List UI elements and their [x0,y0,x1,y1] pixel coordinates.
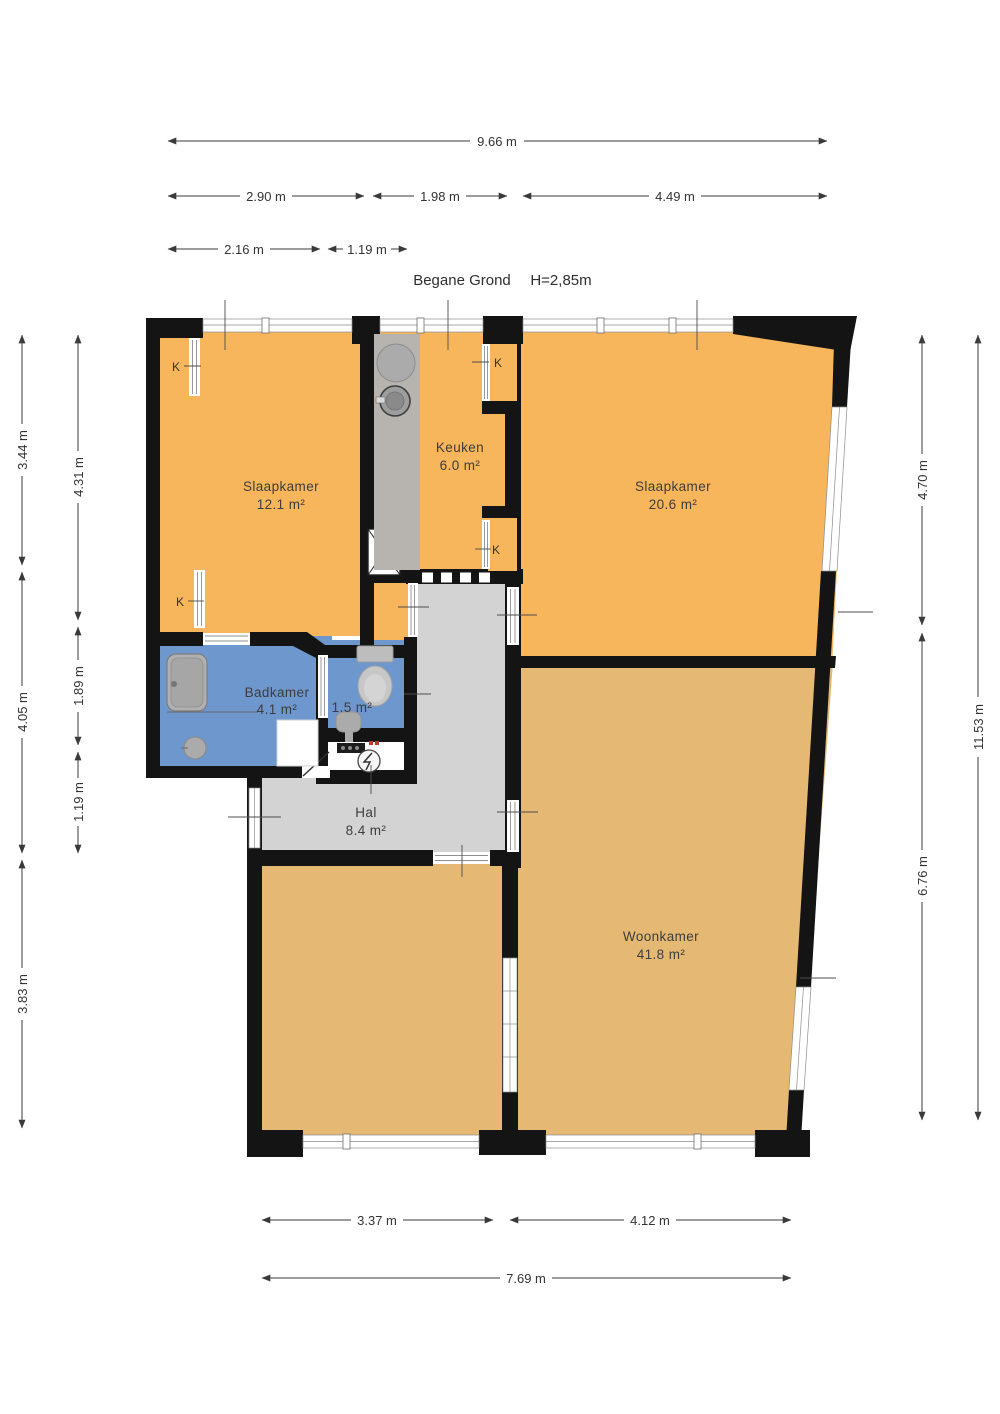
dim-label: 2.90 m [246,189,286,204]
dim-label: 4.05 m [15,692,30,732]
window-mullion [262,318,269,333]
fuse-dot [341,746,345,750]
wall-bedroom1-kitchen [360,330,374,658]
window-mullion [417,318,424,333]
label-keuken-name: Keuken [436,440,484,455]
wall-hal-bottom-a [256,850,433,866]
wall-hal-bottom-b [490,850,508,866]
toilet-sink-stem [345,730,353,742]
toilet-seat [364,674,386,702]
door-bedroom1 [203,633,250,645]
window-mullion [597,318,604,333]
meter-red-mark [375,741,379,745]
label-closet-k2: K [176,595,184,609]
wall-toilet-bottom [320,728,417,742]
door-toilet [318,655,328,718]
dim-label: 11.53 m [971,704,986,750]
dim-left-outer-b: 4.05 m [15,572,30,853]
dim-label: 1.89 m [71,666,86,706]
plan-title: Begane Grond H=2,85m [413,272,591,289]
kitchen-tap-icon [376,397,385,403]
dim-bottom-b: 4.12 m [510,1213,791,1228]
dim-left-inner-b: 1.89 m [71,627,86,745]
label-toilet-area: 1.5 m² [332,700,373,715]
dim-label: 9.66 m [477,134,517,149]
ceiling-height: H=2,85m [530,272,591,289]
dim-label: 4.70 m [915,460,930,500]
washer-area [277,720,318,766]
closet-k3-interior [488,344,517,401]
floorplan-page: Slaapkamer 12.1 m² Keuken 6.0 m² Slaapka… [0,0,1000,1414]
floor-title: Begane Grond [413,272,511,289]
dim-label: 3.44 m [15,430,30,470]
door-closet-k4 [482,520,490,569]
label-woonkamer-area: 41.8 m² [637,947,686,962]
door-hal-woonkamer [507,800,519,852]
floorplan-drawing: Slaapkamer 12.1 m² Keuken 6.0 m² Slaapka… [0,0,1000,1414]
label-slaapkamer1-name: Slaapkamer [243,479,319,494]
dim-label: 7.69 m [506,1271,546,1286]
wall-bedroom2-bottom [505,656,836,668]
dim-label: 3.37 m [357,1213,397,1228]
dim-right-inner-a: 4.70 m [915,335,930,625]
dim-label: 4.49 m [655,189,695,204]
dim-top-total: 9.66 m [168,134,827,149]
label-hal-name: Hal [355,805,376,820]
wall-closet4-top [482,506,521,518]
dim-label: 4.12 m [630,1213,670,1228]
label-woonkamer-name: Woonkamer [623,929,699,944]
dim-label: 3.83 m [15,974,30,1014]
dim-label: 1.19 m [347,242,387,257]
dim-right-inner-b: 6.76 m [915,633,930,1120]
window-mullion [694,1134,701,1149]
dim-label: 1.98 m [420,189,460,204]
wall-toilet-right [404,637,417,784]
wall-badkamer-bottom [146,766,302,778]
dim-bottom-total: 7.69 m [262,1271,791,1286]
wall-left [146,318,160,778]
label-badkamer-area: 4.1 m² [257,702,298,717]
door-bedroom2 [507,587,519,645]
dim-top-b: 1.98 m [373,189,507,204]
wall-bottom-right-corner [755,1130,810,1157]
bathtub-faucet-icon [171,681,177,687]
glass-door-panel [503,958,517,1092]
wall-bedroom1-bottom-a [146,632,203,646]
label-badkamer-name: Badkamer [245,685,310,700]
dim-top-e: 1.19 m [328,242,407,257]
dim-right-outer: 11.53 m [971,335,986,1120]
label-slaapkamer2-name: Slaapkamer [635,479,711,494]
door-closet-k3 [482,344,490,401]
label-keuken-area: 6.0 m² [440,458,481,473]
window-mullion [669,318,676,333]
wall-bedroom1-bottom-b [250,632,295,646]
dim-label: 1.19 m [71,782,86,822]
fuse-dot [348,746,352,750]
dim-label: 6.76 m [915,856,930,896]
label-slaapkamer1-area: 12.1 m² [257,497,306,512]
label-slaapkamer2-area: 20.6 m² [649,497,698,512]
kitchen-sink-basin [386,392,404,410]
dim-bottom-a: 3.37 m [262,1213,493,1228]
wall-bottom-center-block [479,1130,546,1155]
dim-top-a: 2.90 m [168,189,364,204]
dim-label: 4.31 m [71,457,86,497]
dim-label: 2.16 m [224,242,264,257]
fuse-dot [355,746,359,750]
kitchen-cooktop-icon [377,344,415,382]
label-closet-k3: K [494,356,502,370]
label-closet-k1: K [172,360,180,374]
toilet-tank-icon [357,646,393,662]
toilet-sink-icon [336,712,361,732]
door-vestibule [408,583,418,637]
wall-closet3-bottom [482,401,521,414]
room-bottom-left [256,862,508,1140]
electric-meter-icon [358,750,380,772]
label-hal-area: 8.4 m² [346,823,387,838]
door-hal-bottom-room [433,852,490,864]
label-closet-k4: K [492,543,500,557]
window-mullion [343,1134,350,1149]
door-closet-k2 [194,570,205,628]
dim-top-c: 4.49 m [523,189,827,204]
dim-top-d: 2.16 m [168,242,320,257]
room-hal-lower [256,776,412,862]
door-closet-k1 [189,338,200,396]
dim-left-inner-a: 4.31 m [71,335,86,620]
dim-left-outer-c: 3.83 m [15,860,30,1128]
dim-left-outer-a: 3.44 m [15,335,30,565]
meter-red-mark [369,741,373,745]
wall-right-upper [832,342,851,407]
wall-bottom-left-corner [247,1130,303,1157]
window-top-keuken [380,319,483,332]
window-top-bedroom2 [523,319,733,332]
dim-left-inner-c: 1.19 m [71,752,86,853]
room-hal-corridor [410,580,513,862]
room-woonkamer [505,662,833,1140]
